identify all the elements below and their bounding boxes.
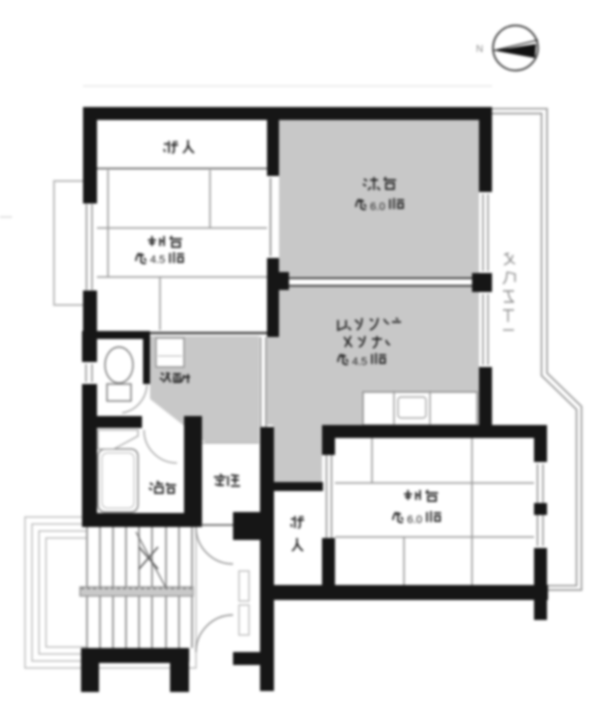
svg-text:6.0: 6.0 xyxy=(407,514,422,526)
svg-text:4.5: 4.5 xyxy=(150,254,165,266)
svg-text:N: N xyxy=(476,44,483,55)
svg-text:6.0: 6.0 xyxy=(370,201,385,213)
svg-text:4.5: 4.5 xyxy=(352,356,367,368)
